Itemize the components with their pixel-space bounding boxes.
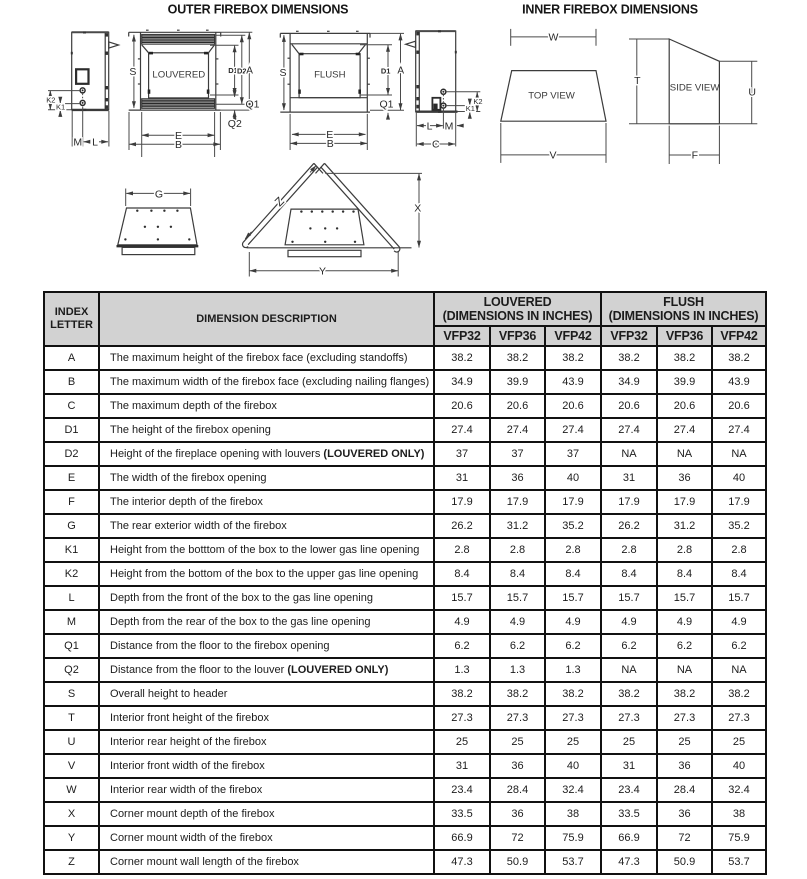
svg-text:Y: Y <box>319 265 326 277</box>
svg-text:X: X <box>414 202 421 214</box>
svg-text:TOP VIEW: TOP VIEW <box>528 91 576 102</box>
svg-text:M: M <box>73 137 82 149</box>
svg-text:V: V <box>549 150 556 162</box>
svg-text:K2: K2 <box>46 96 55 105</box>
svg-text:INNER FIREBOX DIMENSIONS: INNER FIREBOX DIMENSIONS <box>522 3 698 17</box>
svg-text:Q2: Q2 <box>228 118 242 130</box>
svg-text:U: U <box>748 86 756 98</box>
svg-text:A: A <box>397 66 404 77</box>
svg-text:C: C <box>432 139 440 151</box>
svg-text:G: G <box>155 188 163 200</box>
svg-text:L: L <box>92 137 98 149</box>
svg-text:FLUSH: FLUSH <box>314 70 346 81</box>
svg-text:S: S <box>279 67 286 79</box>
svg-text:Q1: Q1 <box>379 99 393 111</box>
svg-text:D1: D1 <box>381 67 391 76</box>
svg-text:W: W <box>549 32 559 44</box>
svg-text:LOUVERED: LOUVERED <box>152 70 205 81</box>
svg-text:OUTER FIREBOX DIMENSIONS: OUTER FIREBOX DIMENSIONS <box>168 3 349 17</box>
svg-text:D2: D2 <box>237 67 247 76</box>
svg-text:A: A <box>246 66 253 77</box>
svg-text:T: T <box>634 75 641 87</box>
svg-text:M: M <box>445 120 454 132</box>
svg-text:B: B <box>327 138 334 150</box>
svg-text:K1: K1 <box>466 104 475 113</box>
svg-text:K1: K1 <box>56 102 65 111</box>
svg-text:L: L <box>427 120 433 132</box>
svg-text:F: F <box>692 150 698 162</box>
svg-text:B: B <box>175 139 182 151</box>
svg-text:Q1: Q1 <box>245 99 259 111</box>
svg-text:S: S <box>129 66 136 78</box>
svg-text:SIDE VIEW: SIDE VIEW <box>670 83 721 94</box>
